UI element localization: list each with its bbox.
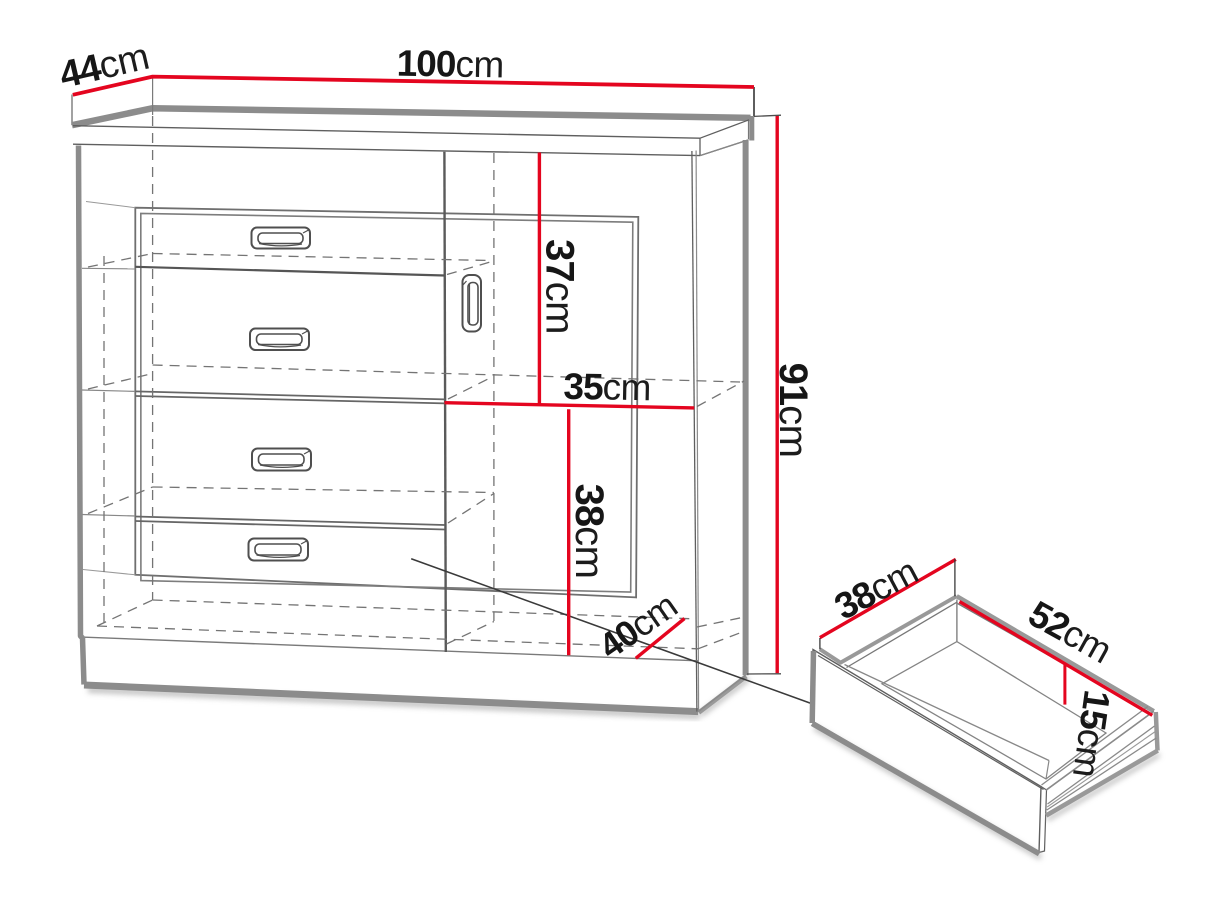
- svg-text:37cm: 37cm: [538, 239, 582, 334]
- svg-text:100cm: 100cm: [396, 43, 504, 86]
- svg-text:91cm: 91cm: [771, 363, 815, 458]
- svg-text:35cm: 35cm: [563, 366, 651, 409]
- svg-text:38cm: 38cm: [567, 484, 611, 579]
